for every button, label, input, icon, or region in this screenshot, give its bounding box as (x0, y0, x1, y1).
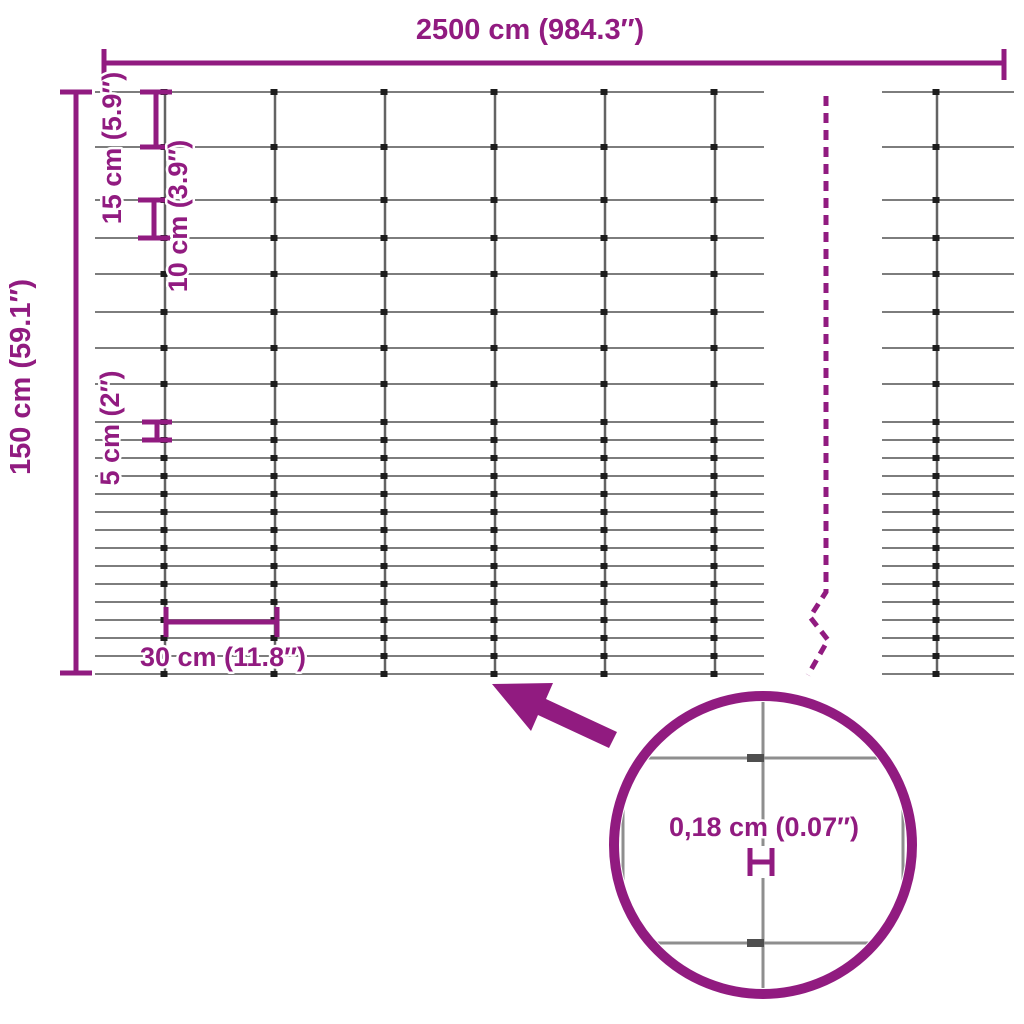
mesh-knot (381, 89, 388, 95)
mesh-knot (711, 345, 718, 351)
mesh-knot (271, 345, 278, 351)
mesh-knot (601, 235, 608, 241)
mesh-knot (271, 563, 278, 569)
mesh-knot (271, 527, 278, 533)
mesh-knot (381, 473, 388, 479)
mesh-knot (161, 563, 168, 569)
mesh-knot (933, 599, 940, 605)
mesh-knot (491, 635, 498, 641)
mesh-knot (161, 345, 168, 351)
mesh-knot (711, 617, 718, 623)
mesh-knot (381, 491, 388, 497)
arrow-icon (492, 683, 617, 748)
mesh-knot (601, 545, 608, 551)
mesh-knot (933, 197, 940, 203)
mesh-knot (711, 419, 718, 425)
mesh-knot (601, 345, 608, 351)
mesh-knot (601, 455, 608, 461)
mesh-knot (601, 473, 608, 479)
mesh-knot (933, 381, 940, 387)
mesh-knot (161, 473, 168, 479)
mesh-knot (711, 635, 718, 641)
mesh-knot (711, 653, 718, 659)
spacing-15-label: 15 cm (5.9″) (97, 72, 127, 225)
cell-width-label: 30 cm (11.8″) (140, 642, 306, 672)
mesh-knot (491, 491, 498, 497)
mesh-knot (601, 271, 608, 277)
mesh-knot (601, 635, 608, 641)
mesh-knot (491, 271, 498, 277)
mesh-knot (601, 144, 608, 150)
width-dimension: 2500 cm (984.3″) (104, 14, 1004, 80)
mesh-knot (933, 309, 940, 315)
mesh-knot (601, 581, 608, 587)
mesh-knot (711, 235, 718, 241)
mesh-knot (381, 599, 388, 605)
mesh-knot (271, 473, 278, 479)
mesh-knot (381, 309, 388, 315)
mesh-knot (271, 235, 278, 241)
break-dashed-line (808, 96, 828, 675)
mesh-knot (381, 419, 388, 425)
mesh-knot (711, 581, 718, 587)
mesh-knot (491, 419, 498, 425)
mesh-knot (601, 197, 608, 203)
mesh-knot (381, 563, 388, 569)
mesh-knot (161, 381, 168, 387)
mesh-knot (271, 144, 278, 150)
mesh-knot (933, 509, 940, 515)
mesh-knot (271, 491, 278, 497)
mesh-knot (601, 437, 608, 443)
mesh-knot (491, 144, 498, 150)
mesh-knot (711, 599, 718, 605)
mesh-knot (711, 545, 718, 551)
zoom-knot-top (747, 754, 764, 762)
mesh-knot (933, 491, 940, 497)
mesh-knot (271, 437, 278, 443)
mesh-knot (381, 144, 388, 150)
mesh-knot (161, 599, 168, 605)
wire-thickness-label: 0,18 cm (0.07″) (669, 812, 859, 842)
mesh-knot (491, 437, 498, 443)
mesh-knot (491, 89, 498, 95)
height-dimension: 150 cm (59.1″) (5, 92, 92, 673)
mesh-knot (601, 491, 608, 497)
mesh-knot (381, 271, 388, 277)
mesh-knot (381, 653, 388, 659)
mesh-knot (933, 89, 940, 95)
mesh-knot (711, 197, 718, 203)
mesh-knot (711, 473, 718, 479)
mesh-knot (271, 545, 278, 551)
spacing-15-bracket (140, 92, 172, 147)
mesh-knot (271, 419, 278, 425)
mesh-knot (161, 491, 168, 497)
width-label: 2500 cm (984.3″) (416, 14, 644, 46)
mesh-knot (491, 671, 498, 677)
mesh-knot (711, 671, 718, 677)
mesh-knot (381, 545, 388, 551)
mesh-knot (601, 599, 608, 605)
mesh-knot (491, 599, 498, 605)
mesh-knot (381, 437, 388, 443)
mesh-knot (381, 527, 388, 533)
zoom-knot-bottom (747, 939, 764, 947)
mesh-knot (933, 437, 940, 443)
mesh-knot (933, 581, 940, 587)
mesh-knot (161, 309, 168, 315)
mesh-knot (161, 527, 168, 533)
spacing-5-dimension: 5 cm (2″) (95, 371, 172, 486)
mesh-knot (491, 545, 498, 551)
fence-dimension-diagram: 2500 cm (984.3″) 150 cm (59.1″) 15 cm (5… (0, 0, 1024, 1024)
mesh-knot (491, 345, 498, 351)
mesh-knot (271, 197, 278, 203)
mesh-knot (491, 509, 498, 515)
mesh-knot (933, 473, 940, 479)
mesh-knot (381, 455, 388, 461)
mesh-knot (601, 509, 608, 515)
mesh-knot (933, 617, 940, 623)
spacing-10-dimension: 10 cm (3.9″) (138, 140, 193, 293)
mesh-knot (933, 144, 940, 150)
mesh-knot (711, 437, 718, 443)
mesh-knot (271, 89, 278, 95)
mesh-knot (711, 381, 718, 387)
mesh-knot (711, 89, 718, 95)
mesh-knot (271, 455, 278, 461)
mesh-knot (491, 617, 498, 623)
mesh-knot (271, 309, 278, 315)
mesh-knot (271, 509, 278, 515)
mesh-knot (491, 235, 498, 241)
mesh-knot (711, 309, 718, 315)
mesh-knot (381, 617, 388, 623)
mesh-knot (161, 455, 168, 461)
mesh-knot (381, 671, 388, 677)
mesh-knot (271, 381, 278, 387)
mesh-knot (711, 271, 718, 277)
mesh-knot (933, 271, 940, 277)
mesh-knot (491, 473, 498, 479)
mesh-knot (491, 197, 498, 203)
diagram-canvas: 2500 cm (984.3″) 150 cm (59.1″) 15 cm (5… (0, 0, 1024, 1024)
mesh-knot (271, 581, 278, 587)
height-label: 150 cm (59.1″) (5, 279, 37, 475)
mesh-knot (381, 381, 388, 387)
mesh-knot (491, 309, 498, 315)
mesh-knot (601, 527, 608, 533)
spacing-5-label: 5 cm (2″) (95, 371, 125, 486)
mesh-knot (491, 653, 498, 659)
cell-width-bracket (166, 607, 277, 637)
mesh-knot (933, 345, 940, 351)
mesh-knot (933, 563, 940, 569)
mesh-knot (491, 581, 498, 587)
mesh-knot (161, 545, 168, 551)
mesh-knot (933, 545, 940, 551)
mesh-knot (711, 491, 718, 497)
zoom-circle: 0,18 cm (0.07″) (612, 694, 914, 998)
mesh-knot (711, 455, 718, 461)
mesh-knot (933, 653, 940, 659)
mesh-knot (601, 381, 608, 387)
mesh-knot (381, 235, 388, 241)
mesh-knot (601, 309, 608, 315)
mesh-knot (711, 144, 718, 150)
mesh-knot (933, 671, 940, 677)
mesh-knot (491, 381, 498, 387)
mesh-knot (491, 455, 498, 461)
mesh-knot (161, 581, 168, 587)
mesh-knot (491, 527, 498, 533)
mesh-knot (601, 671, 608, 677)
mesh-knot (601, 653, 608, 659)
mesh-knot (601, 617, 608, 623)
mesh-knot (933, 527, 940, 533)
mesh-knot (381, 635, 388, 641)
mesh-knot (601, 89, 608, 95)
mesh-knot (933, 635, 940, 641)
mesh-knot (601, 419, 608, 425)
mesh-knot (601, 563, 608, 569)
mesh-knot (933, 455, 940, 461)
mesh-knot (711, 563, 718, 569)
mesh-knot (933, 419, 940, 425)
mesh-knot (933, 235, 940, 241)
mesh-knot (271, 599, 278, 605)
mesh-grid (95, 89, 1014, 677)
mesh-knot (491, 563, 498, 569)
spacing-10-label: 10 cm (3.9″) (163, 140, 193, 293)
mesh-knot (381, 509, 388, 515)
mesh-knot (381, 197, 388, 203)
mesh-knot (381, 581, 388, 587)
mesh-knot (711, 527, 718, 533)
mesh-knot (711, 509, 718, 515)
mesh-knot (271, 271, 278, 277)
mesh-knot (381, 345, 388, 351)
mesh-knot (161, 509, 168, 515)
